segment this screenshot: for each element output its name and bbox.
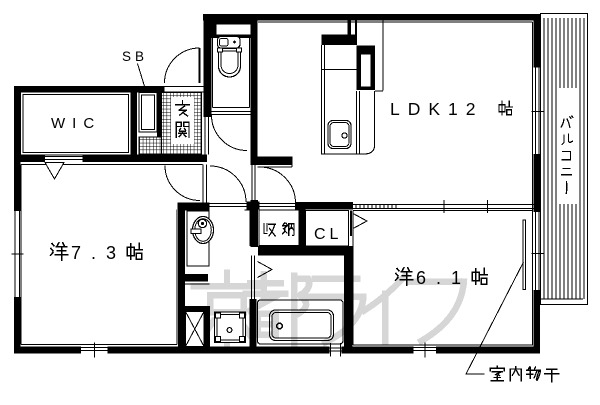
svg-text:WIC: WIC [51,115,101,132]
svg-text:CL: CL [314,226,342,243]
svg-text:7.3: 7.3 [71,243,126,263]
svg-text:6.1: 6.1 [416,268,471,288]
svg-text:LDK12: LDK12 [390,99,484,119]
svg-text:SB: SB [122,49,148,64]
